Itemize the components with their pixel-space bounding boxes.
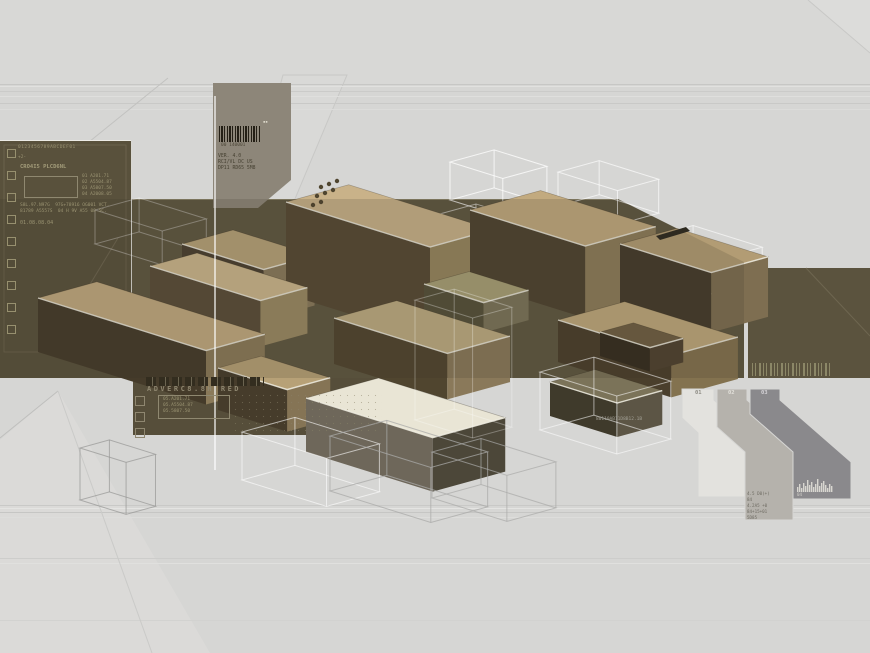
lower-box-line-2: 05.A5504.87	[163, 403, 193, 408]
checkbox-mark	[7, 281, 16, 290]
checkbox-mark	[7, 193, 16, 202]
left-panel-date-code: 01.08.08.04	[20, 221, 53, 227]
histogram-label: 04	[797, 493, 802, 498]
checkbox-mark	[135, 412, 145, 422]
banner-text-line-5: 5D85	[747, 516, 757, 521]
barcode-box-line-1: VER. 4.0	[218, 154, 241, 160]
checkbox-mark	[7, 237, 16, 246]
checkbox-mark	[7, 171, 16, 180]
diagram-label-1: 01 A201.71	[82, 174, 109, 179]
scene-graphics	[0, 0, 870, 653]
banner-label-01: 01	[695, 390, 702, 396]
barcode-box-line-3: DP11 RD65 5M8	[218, 166, 256, 172]
lower-box-line-1: 05.A201.71	[163, 397, 190, 402]
left-panel-diagram-frame	[24, 176, 78, 198]
dot-grid-texture	[232, 392, 382, 434]
barcode-graphic	[219, 126, 260, 142]
checkbox-mark	[7, 325, 16, 334]
checkbox-mark	[7, 259, 16, 268]
left-panel-title: CRO4I5 PLCD6NL	[20, 164, 66, 170]
left-panel-digit-row: 0123456789ABCDEF01	[18, 145, 76, 150]
checkbox-mark	[135, 428, 145, 438]
banner-label-02: 02	[728, 390, 735, 396]
left-panel-body-line-1: S8L.97.N97G 97G+78916 OG001 VCT.	[20, 203, 109, 208]
left-panel-plus-code: +2-	[18, 155, 26, 160]
checkbox-mark	[7, 215, 16, 224]
artwork-canvas: 0123456789ABCDEF01 +2- CRO4I5 PLCD6NL 01…	[0, 0, 870, 653]
barcode-code: 00 140001	[221, 143, 245, 148]
banner-label-03: 03	[761, 390, 768, 396]
barcode-strip-right	[752, 363, 830, 376]
checkbox-mark	[7, 149, 16, 158]
diagram-label-3: 03 A5807.50	[82, 186, 112, 191]
lower-panel-title: ADVERC8.8H RED	[147, 385, 241, 393]
diagram-label-4: 04 A2008.05	[82, 192, 112, 197]
checkbox-mark	[7, 303, 16, 312]
serial-text: 80110AB11D8B12.1B	[596, 417, 642, 422]
lower-box-line-3: 05.5807.50	[163, 409, 190, 414]
diagram-label-2: 02 A5504.87	[82, 180, 112, 185]
barcode-tm-marks: ▪▪	[263, 120, 268, 125]
left-panel-body-line-2: 81789 A5557S 04 H 9V A55 08 5C.	[20, 209, 107, 214]
checkbox-mark	[135, 396, 145, 406]
barcode-box-line-2: RCI/VL DC US	[218, 160, 253, 166]
